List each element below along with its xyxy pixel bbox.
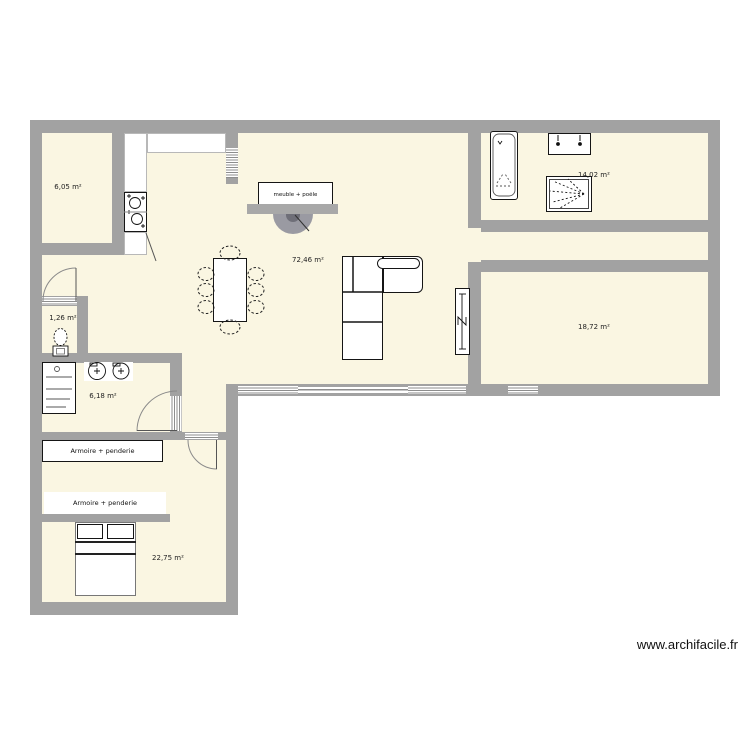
area-label-suite[interactable]: 18,72 m² — [566, 324, 622, 331]
area-label-living[interactable]: 72,46 m² — [280, 257, 336, 264]
floor-plan-canvas: meuble + poêle Armoire + penderie Armoir… — [0, 0, 750, 750]
door-storage-leaf[interactable] — [146, 233, 156, 261]
area-label-laundry[interactable]: 6,18 m² — [75, 393, 131, 400]
door-bedroom[interactable] — [188, 440, 217, 469]
bathtub-detail — [493, 134, 515, 196]
area-label-bath[interactable]: 14,02 m² — [566, 172, 622, 179]
sofa-seams — [342, 256, 383, 322]
area-label-wc[interactable]: 1,26 m² — [35, 315, 91, 322]
washbasin-faucets — [557, 135, 582, 145]
door-laundry[interactable] — [137, 391, 177, 431]
area-label-bedroom[interactable]: 22,75 m² — [140, 555, 196, 562]
washer-dryer[interactable] — [89, 363, 130, 380]
radiator-suite-symbol — [458, 294, 466, 349]
area-label-storage[interactable]: 6,05 m² — [40, 184, 96, 191]
kitchen-sink-detail — [124, 194, 147, 228]
toilet[interactable] — [53, 329, 68, 357]
stove-detail-line — [295, 215, 309, 231]
watermark-url: www.archifacile.fr — [637, 637, 738, 652]
shower-spray — [550, 179, 584, 208]
laundry-cabinet-shelves — [46, 367, 72, 408]
dining-chairs[interactable] — [198, 246, 264, 334]
door-wc[interactable] — [43, 268, 76, 301]
